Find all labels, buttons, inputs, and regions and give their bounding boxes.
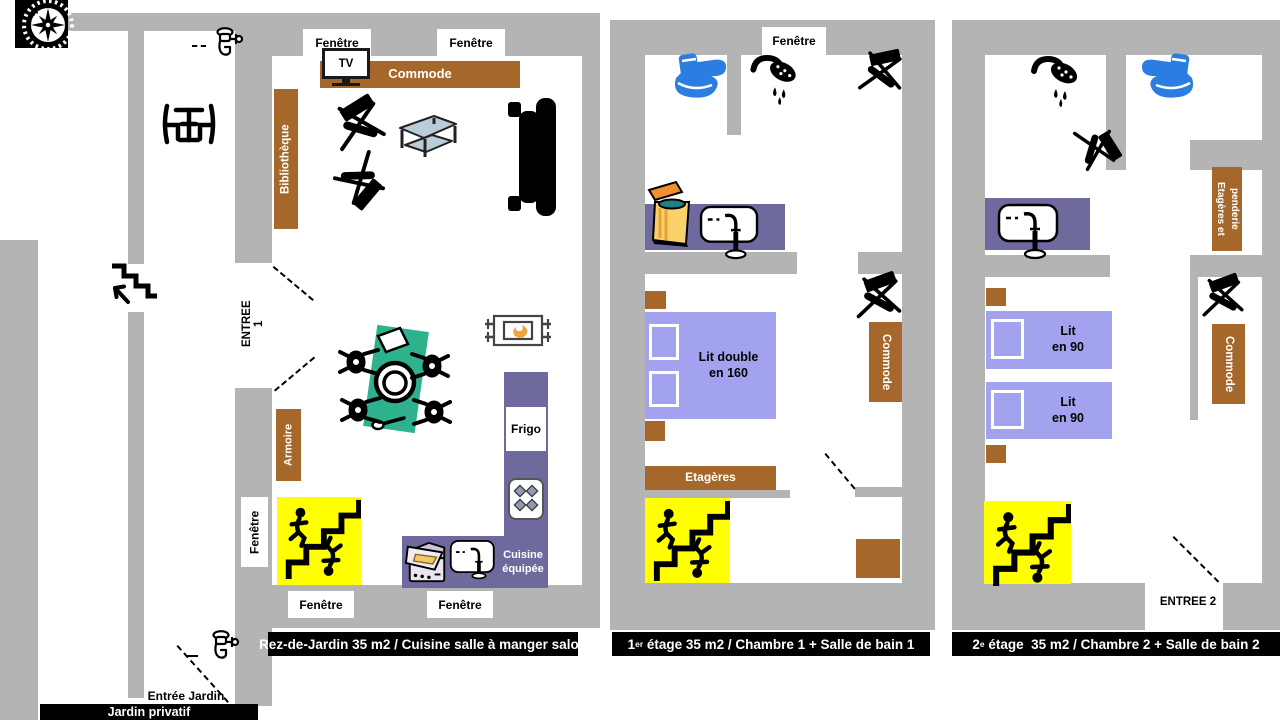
floor3-banner: 2e étage 35 m2 / Chambre 2 + Salle de ba… <box>952 632 1280 656</box>
wall-bottom <box>952 583 1145 630</box>
banner-rest: étage 35 m2 / Chambre 2 + Salle de bain … <box>985 637 1260 652</box>
floor-plan-canvas: N <box>0 0 1280 720</box>
toilet-icon <box>1140 52 1198 104</box>
wall-left <box>952 20 985 630</box>
bed-label: Lit en 90 <box>1014 395 1084 426</box>
door-swing-dash <box>1173 536 1220 583</box>
banner-num: 2 <box>972 637 980 652</box>
commode-label: Commode <box>1222 336 1235 392</box>
nightstand <box>986 288 1006 306</box>
wall-top <box>952 20 1280 55</box>
etageres-penderie-label: Etagères et penderie <box>1213 182 1241 236</box>
bathroom-sink-icon <box>998 204 1060 262</box>
wall-jog <box>1190 140 1262 170</box>
floor-plan-2e-etage: Etagères et penderie Lit en 90 Lit en 90… <box>0 0 1280 720</box>
etageres-penderie-bar: Etagères et penderie <box>1212 167 1242 251</box>
commode-bar: Commode <box>1212 324 1245 404</box>
wall-right <box>1262 20 1280 630</box>
pillow <box>991 319 1024 359</box>
nightstand <box>986 445 1006 463</box>
stairs-icon <box>984 501 1071 584</box>
pillow <box>991 390 1024 429</box>
entree2-label: ENTREE 2 <box>1152 594 1224 610</box>
wall-bottom <box>1223 583 1280 630</box>
bed-label: Lit en 90 <box>1014 324 1084 355</box>
folding-chair-icon <box>1196 272 1250 320</box>
shower-icon <box>1026 52 1084 110</box>
